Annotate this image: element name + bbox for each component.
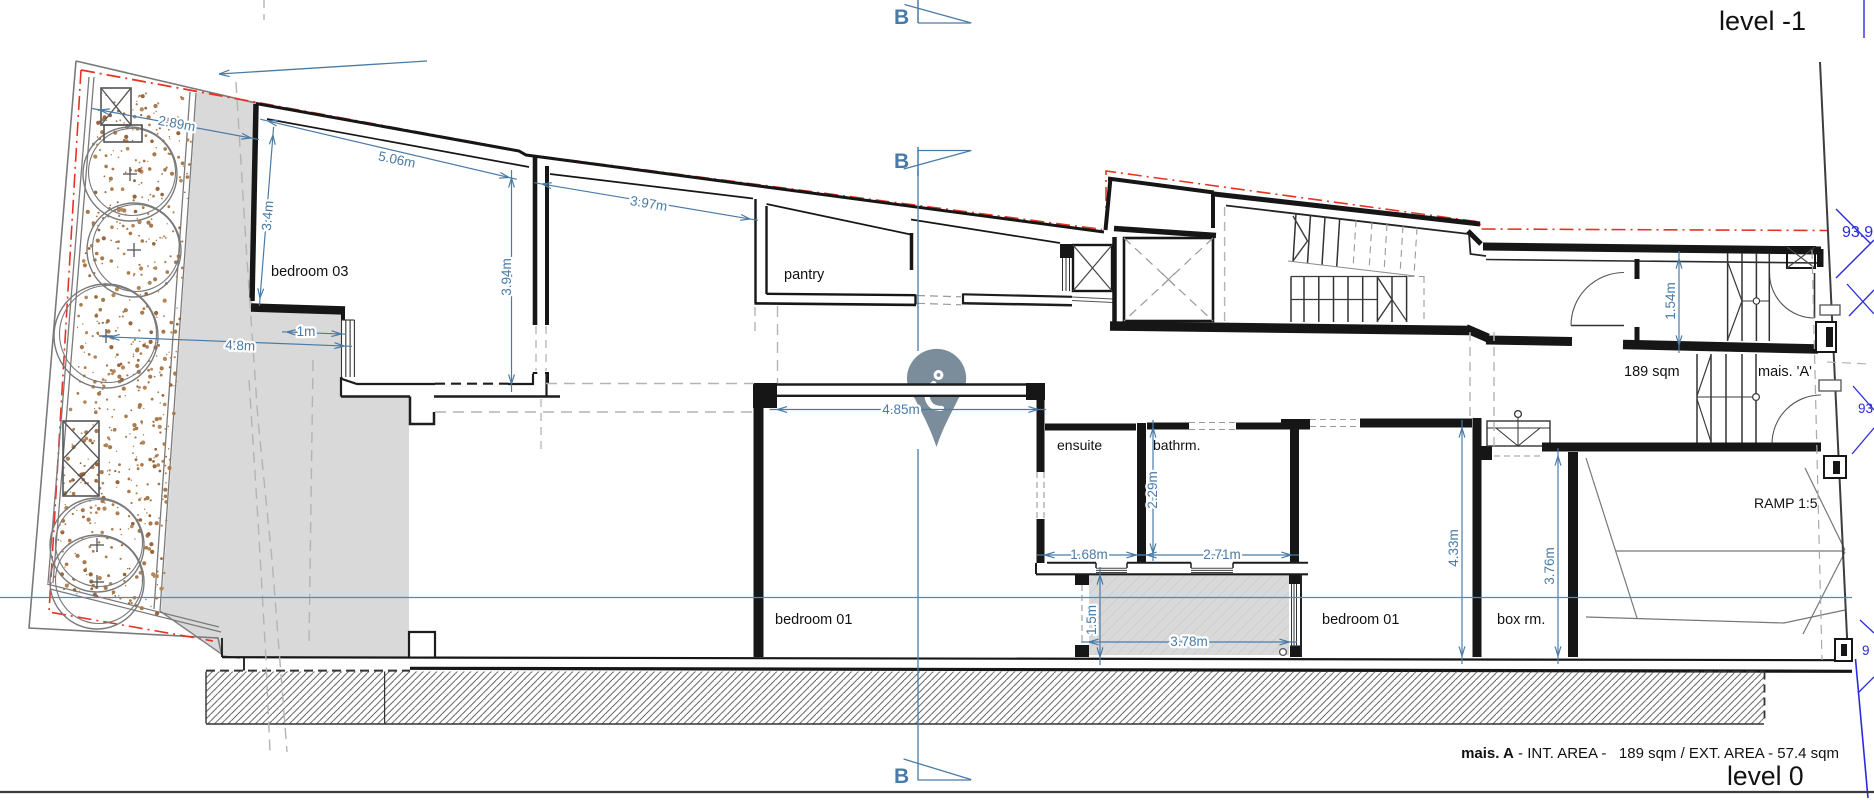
svg-text:ensuite: ensuite <box>1057 437 1102 453</box>
svg-text:pantry: pantry <box>784 267 825 283</box>
svg-text:1.54m: 1.54m <box>1663 282 1678 320</box>
svg-text:2.29m: 2.29m <box>1145 471 1160 509</box>
svg-text:mais. A - INT. AREA - 189 sq: mais. A - INT. AREA - 189 sqm / EXT. ARE… <box>1461 745 1839 762</box>
svg-text:level -1: level -1 <box>1719 6 1806 36</box>
svg-text:3.78m: 3.78m <box>1170 634 1208 649</box>
svg-text:1.5m: 1.5m <box>1084 605 1099 635</box>
svg-text:2.71m: 2.71m <box>1203 547 1241 562</box>
svg-text:bedroom 01: bedroom 01 <box>775 612 852 628</box>
svg-text:level 0: level 0 <box>1727 761 1804 791</box>
svg-text:B: B <box>894 765 909 788</box>
svg-text:4.8m: 4.8m <box>225 337 256 353</box>
svg-text:4.33m: 4.33m <box>1446 529 1461 567</box>
svg-text:3.94m: 3.94m <box>499 258 514 296</box>
svg-text:93: 93 <box>1858 401 1873 416</box>
svg-text:1.68m: 1.68m <box>1070 547 1108 562</box>
svg-text:189 sqm: 189 sqm <box>1624 364 1680 380</box>
svg-text:B: B <box>894 6 909 29</box>
svg-text:bedroom 03: bedroom 03 <box>271 264 348 280</box>
svg-text:RAMP 1:5: RAMP 1:5 <box>1754 495 1818 511</box>
svg-text:3.4m: 3.4m <box>259 200 277 231</box>
svg-text:box rm.: box rm. <box>1497 612 1545 628</box>
svg-text:3.76m: 3.76m <box>1542 547 1557 585</box>
svg-text:4.85m: 4.85m <box>882 402 920 417</box>
svg-text:93.93: 93.93 <box>1842 224 1874 241</box>
svg-text:9: 9 <box>1862 643 1870 658</box>
svg-text:bedroom 01: bedroom 01 <box>1322 612 1399 628</box>
svg-text:1m: 1m <box>297 324 316 339</box>
svg-text:mais. 'A': mais. 'A' <box>1758 364 1812 380</box>
svg-text:bathrm.: bathrm. <box>1153 437 1200 453</box>
svg-text:B: B <box>894 150 909 173</box>
